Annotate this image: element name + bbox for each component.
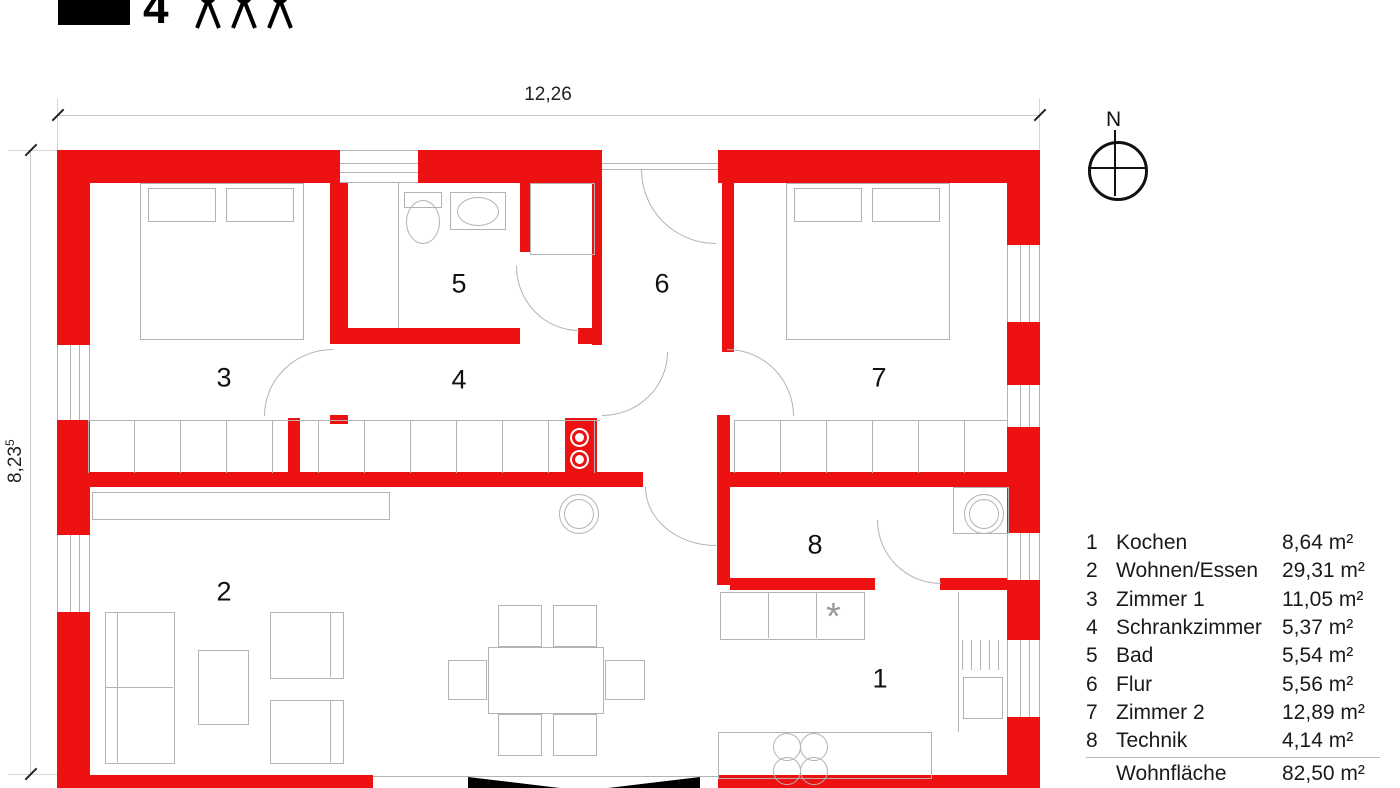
north-arrow: N bbox=[1080, 105, 1150, 205]
legend-name: Zimmer 2 bbox=[1116, 701, 1282, 725]
corridor-wall-right bbox=[730, 472, 1007, 487]
top-dimension-line bbox=[57, 115, 1040, 116]
room-number-3: 3 bbox=[216, 363, 231, 394]
legend-row: 3 Zimmer 1 11,05 m² bbox=[1086, 586, 1380, 614]
legend-name: Schrankzimmer bbox=[1116, 616, 1282, 640]
dining-chair bbox=[498, 605, 542, 647]
left-dimension-line bbox=[30, 150, 31, 775]
legend-num: 4 bbox=[1086, 616, 1116, 640]
room-number-1: 1 bbox=[872, 664, 887, 695]
window-right-zimmer2-b bbox=[1007, 385, 1040, 427]
wall-top bbox=[718, 150, 1040, 183]
legend-row: 1 Kochen 8,64 m² bbox=[1086, 529, 1380, 557]
logo-number: 4 bbox=[143, 0, 169, 34]
sofa-line bbox=[117, 612, 118, 762]
dining-chair bbox=[498, 714, 542, 756]
wall-technik-left bbox=[717, 415, 730, 585]
legend-divider bbox=[1086, 757, 1380, 758]
wall-bad-niche bbox=[520, 183, 530, 252]
legend-num: 8 bbox=[1086, 729, 1116, 753]
room-number-6: 6 bbox=[654, 269, 669, 300]
window-left-zimmer1 bbox=[57, 345, 90, 420]
legend-area: 8,64 m² bbox=[1282, 531, 1380, 555]
counter-divider bbox=[816, 592, 817, 638]
pillow bbox=[794, 188, 862, 222]
counter-divider bbox=[768, 592, 769, 638]
closet-band-right bbox=[734, 420, 1007, 473]
wall-zimmer1-bad bbox=[330, 183, 348, 344]
wall-right bbox=[1007, 322, 1040, 385]
legend-name: Wohnen/Essen bbox=[1116, 559, 1282, 583]
legend-name: Wohnfläche bbox=[1116, 762, 1282, 786]
room-number-5: 5 bbox=[451, 269, 466, 300]
legend-row: 2 Wohnen/Essen 29,31 m² bbox=[1086, 557, 1380, 585]
legend-area: 4,14 m² bbox=[1282, 729, 1380, 753]
window-right-technik bbox=[1007, 533, 1040, 580]
legend-area: 82,50 m² bbox=[1282, 762, 1380, 786]
legend-row: 8 Technik 4,14 m² bbox=[1086, 727, 1380, 755]
legend-name: Bad bbox=[1116, 644, 1282, 668]
window-left-wohnen bbox=[57, 535, 90, 612]
wall-technik-bottom bbox=[940, 578, 1007, 590]
sofa-line bbox=[105, 687, 173, 688]
pillow bbox=[872, 188, 940, 222]
dining-chair bbox=[553, 714, 597, 756]
width-dimension: 12,26 bbox=[498, 84, 598, 106]
door-arc-entrance bbox=[641, 170, 716, 244]
armchair-line bbox=[330, 700, 331, 762]
pillow bbox=[226, 188, 294, 222]
wall-top bbox=[57, 150, 340, 183]
armchair bbox=[270, 612, 344, 679]
wall-bad-bottom bbox=[330, 328, 520, 344]
washing-machine-inner bbox=[969, 499, 999, 529]
appliance-marker: * bbox=[826, 598, 841, 636]
shower-niche bbox=[530, 183, 595, 255]
people-icons bbox=[190, 0, 300, 30]
room-number-4: 4 bbox=[451, 365, 466, 396]
legend-area: 29,31 m² bbox=[1282, 559, 1380, 583]
legend-name: Zimmer 1 bbox=[1116, 588, 1282, 612]
legend-num: 6 bbox=[1086, 673, 1116, 697]
legend-area: 5,37 m² bbox=[1282, 616, 1380, 640]
appliance-hatch bbox=[962, 640, 1004, 670]
legend-num: 7 bbox=[1086, 701, 1116, 725]
logo: 4 bbox=[58, 0, 298, 30]
wall-top bbox=[418, 150, 600, 183]
legend-area: 11,05 m² bbox=[1282, 588, 1380, 612]
closet-band-left bbox=[88, 420, 600, 473]
door-arc-schrankzimmer bbox=[602, 352, 668, 416]
window-top-bath bbox=[340, 150, 418, 183]
wall-flur-zimmer2 bbox=[722, 183, 734, 352]
wood-stove-inner bbox=[564, 499, 594, 529]
room-number-8: 8 bbox=[807, 530, 822, 561]
legend-row: 5 Bad 5,54 m² bbox=[1086, 642, 1380, 670]
corridor-wall-left bbox=[80, 472, 643, 487]
armchair-line bbox=[330, 612, 331, 677]
legend-num: 3 bbox=[1086, 588, 1116, 612]
sideboard bbox=[92, 492, 390, 520]
dining-chair bbox=[605, 660, 645, 700]
hob-burner bbox=[773, 757, 801, 785]
hob-burner bbox=[800, 757, 828, 785]
wall-right bbox=[1007, 150, 1040, 245]
dining-chair bbox=[448, 660, 487, 700]
wall-technik-bottom bbox=[730, 578, 875, 590]
wc-bowl bbox=[406, 200, 440, 244]
legend-num: 2 bbox=[1086, 559, 1116, 583]
door-arc-corridor bbox=[645, 487, 716, 546]
legend-name: Technik bbox=[1116, 729, 1282, 753]
door-arc-technik bbox=[877, 520, 941, 584]
terrace-door-line bbox=[373, 776, 718, 777]
legend-area: 12,89 m² bbox=[1282, 701, 1380, 725]
kitchen-column-line bbox=[958, 592, 959, 732]
legend-area: 5,54 m² bbox=[1282, 644, 1380, 668]
dim-extension bbox=[1039, 98, 1040, 150]
legend-summary-row: Wohnfläche 82,50 m² bbox=[1086, 759, 1380, 787]
legend-name: Kochen bbox=[1116, 531, 1282, 555]
wall-left bbox=[57, 150, 90, 345]
floor-plan-sheet: 4 12,26 8,235 N bbox=[0, 0, 1400, 788]
room-number-7: 7 bbox=[871, 363, 886, 394]
sink-basin bbox=[457, 197, 499, 226]
dim-extension bbox=[8, 150, 57, 151]
wall-bottom bbox=[57, 775, 373, 788]
door-arc-bad bbox=[516, 266, 579, 331]
legend-area: 5,56 m² bbox=[1282, 673, 1380, 697]
kitchen-counter-top bbox=[720, 592, 865, 640]
bath-partition-line bbox=[398, 183, 399, 328]
dim-extension bbox=[8, 774, 57, 775]
appliance-box bbox=[963, 677, 1003, 719]
logo-block bbox=[58, 0, 130, 25]
north-label: N bbox=[1106, 108, 1121, 132]
legend-num: 1 bbox=[1086, 531, 1116, 555]
legend-row: 4 Schrankzimmer 5,37 m² bbox=[1086, 614, 1380, 642]
legend-name: Flur bbox=[1116, 673, 1282, 697]
wall-right bbox=[1007, 580, 1040, 640]
legend-row: 7 Zimmer 2 12,89 m² bbox=[1086, 699, 1380, 727]
window-right-zimmer2-a bbox=[1007, 245, 1040, 322]
legend-row: 6 Flur 5,56 m² bbox=[1086, 670, 1380, 698]
north-circle bbox=[1088, 141, 1148, 201]
room-legend: 1 Kochen 8,64 m² 2 Wohnen/Essen 29,31 m²… bbox=[1086, 529, 1380, 788]
dining-chair bbox=[553, 605, 597, 647]
dining-table bbox=[488, 647, 604, 714]
north-crossline bbox=[1088, 167, 1146, 169]
room-number-2: 2 bbox=[216, 577, 231, 608]
pillow bbox=[148, 188, 216, 222]
height-dimension: 8,235 bbox=[3, 426, 27, 496]
legend-num: 5 bbox=[1086, 644, 1116, 668]
door-arc-zimmer2 bbox=[727, 349, 794, 416]
armchair bbox=[270, 700, 344, 764]
wall-right bbox=[1007, 427, 1040, 533]
coffee-table bbox=[198, 650, 249, 725]
threshold-line bbox=[600, 163, 718, 164]
wall-left bbox=[57, 612, 90, 788]
window-right-kochen bbox=[1007, 640, 1040, 717]
dim-extension bbox=[57, 98, 58, 150]
sofa bbox=[105, 612, 175, 764]
door-arc-zimmer1 bbox=[264, 349, 333, 416]
